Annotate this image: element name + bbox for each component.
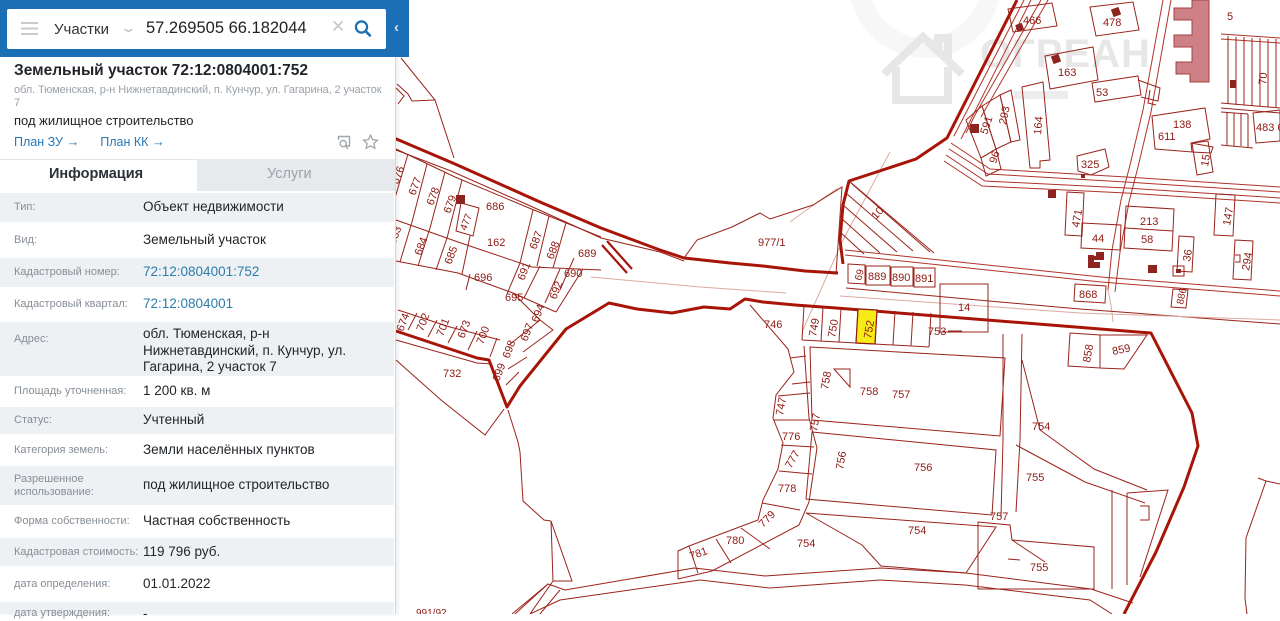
svg-text:754: 754 — [797, 538, 815, 550]
svg-text:53: 53 — [1096, 87, 1108, 99]
svg-text:5: 5 — [1227, 11, 1233, 23]
svg-text:776: 776 — [782, 431, 800, 443]
svg-text:611: 611 — [1158, 131, 1176, 143]
svg-text:36: 36 — [1181, 248, 1195, 262]
svg-text:890: 890 — [892, 272, 910, 284]
svg-text:162: 162 — [487, 237, 505, 249]
svg-text:755: 755 — [1030, 562, 1048, 574]
svg-text:746: 746 — [764, 319, 782, 331]
svg-text:14: 14 — [958, 302, 970, 314]
svg-text:690: 690 — [564, 268, 582, 280]
svg-text:977/1: 977/1 — [758, 237, 786, 249]
svg-text:70: 70 — [1257, 72, 1270, 85]
svg-text:686: 686 — [486, 201, 504, 213]
svg-text:732: 732 — [443, 368, 461, 380]
svg-text:138: 138 — [1173, 119, 1191, 131]
svg-text:478: 478 — [1103, 17, 1121, 29]
svg-text:689: 689 — [578, 248, 596, 260]
svg-text:58: 58 — [1141, 234, 1153, 246]
svg-text:754: 754 — [1032, 421, 1050, 433]
svg-text:778: 778 — [778, 483, 796, 495]
svg-text:757: 757 — [892, 389, 910, 401]
svg-text:758: 758 — [860, 386, 878, 398]
svg-text:483 б: 483 б — [1256, 122, 1280, 134]
svg-text:756: 756 — [914, 462, 932, 474]
svg-text:164: 164 — [1032, 116, 1046, 135]
svg-text:780: 780 — [726, 535, 744, 547]
svg-text:163: 163 — [1058, 67, 1076, 79]
svg-text:44: 44 — [1092, 233, 1104, 245]
svg-text:991/92: 991/92 — [416, 608, 447, 614]
svg-text:889: 889 — [868, 271, 886, 283]
svg-text:466: 466 — [1023, 15, 1041, 27]
svg-text:753: 753 — [928, 326, 946, 338]
svg-text:757: 757 — [990, 511, 1008, 523]
svg-text:15: 15 — [1199, 153, 1213, 167]
svg-text:213: 213 — [1140, 216, 1158, 228]
svg-text:325: 325 — [1081, 159, 1099, 171]
svg-text:754: 754 — [908, 525, 926, 537]
svg-text:868: 868 — [1079, 289, 1097, 301]
svg-text:696: 696 — [474, 272, 492, 284]
svg-text:695: 695 — [505, 292, 523, 304]
svg-text:755: 755 — [1026, 472, 1044, 484]
svg-text:891: 891 — [915, 273, 933, 285]
